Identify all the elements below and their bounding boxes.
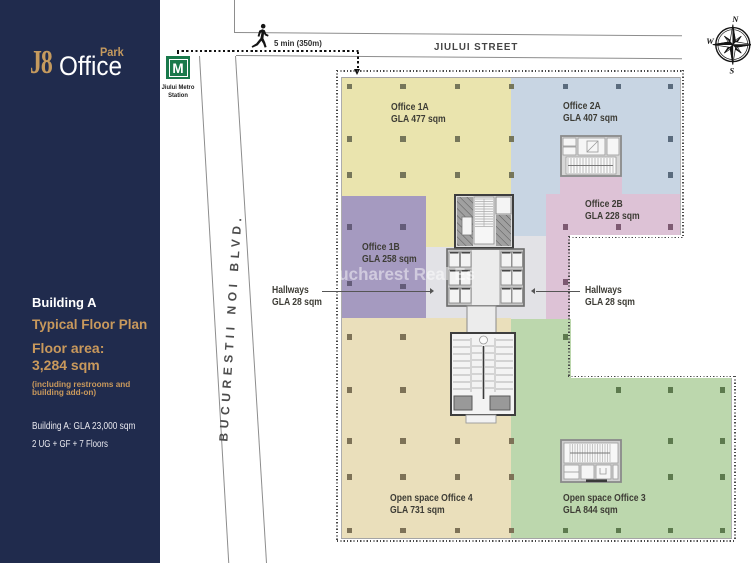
svg-text:S: S [729,66,734,76]
svg-text:N: N [731,16,739,24]
